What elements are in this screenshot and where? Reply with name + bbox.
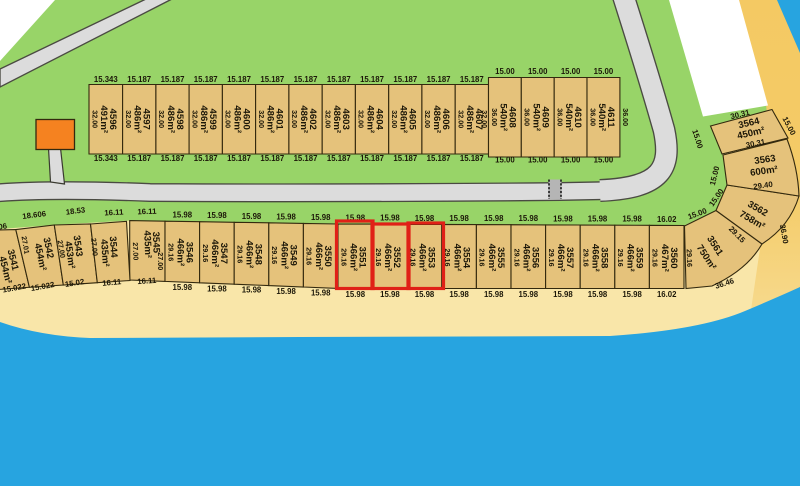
svg-text:15.98: 15.98 — [484, 214, 504, 223]
svg-text:4606: 4606 — [440, 109, 451, 130]
svg-text:16.02: 16.02 — [657, 215, 677, 224]
svg-text:15.98: 15.98 — [622, 290, 642, 299]
svg-text:3556: 3556 — [530, 247, 541, 268]
svg-text:15.98: 15.98 — [276, 212, 296, 221]
svg-text:15.98: 15.98 — [242, 212, 262, 221]
svg-text:4609: 4609 — [539, 107, 550, 128]
svg-text:36.00: 36.00 — [490, 108, 499, 126]
svg-text:4610: 4610 — [572, 107, 583, 128]
svg-text:15.98: 15.98 — [173, 283, 193, 292]
svg-text:15.187: 15.187 — [360, 75, 384, 84]
svg-text:3553: 3553 — [426, 247, 437, 268]
svg-text:3554: 3554 — [460, 247, 471, 269]
svg-text:29.16: 29.16 — [651, 249, 660, 267]
svg-text:32.00: 32.00 — [357, 110, 366, 128]
svg-text:15.98: 15.98 — [415, 290, 435, 299]
svg-text:15.187: 15.187 — [460, 75, 484, 84]
svg-text:3557: 3557 — [564, 247, 575, 268]
svg-text:4602: 4602 — [307, 109, 318, 130]
svg-text:15.187: 15.187 — [260, 154, 284, 163]
svg-text:36.00: 36.00 — [523, 108, 532, 126]
svg-text:32.00: 32.00 — [290, 110, 299, 128]
svg-text:15.98: 15.98 — [553, 290, 573, 299]
svg-text:32.00: 32.00 — [390, 110, 399, 128]
svg-text:15.98: 15.98 — [588, 290, 608, 299]
svg-text:3550: 3550 — [322, 246, 333, 267]
svg-text:32.00: 32.00 — [324, 110, 333, 128]
svg-text:32.00: 32.00 — [90, 110, 99, 128]
svg-text:15.00: 15.00 — [561, 67, 581, 76]
svg-text:15.98: 15.98 — [449, 290, 469, 299]
svg-text:15.187: 15.187 — [227, 75, 251, 84]
svg-text:29.16: 29.16 — [547, 249, 556, 267]
svg-text:15.00: 15.00 — [528, 156, 548, 165]
svg-text:16.11: 16.11 — [137, 207, 157, 217]
svg-text:15.98: 15.98 — [173, 211, 193, 220]
svg-text:15.98: 15.98 — [242, 286, 262, 295]
svg-text:15.98: 15.98 — [207, 284, 227, 293]
svg-text:27.00: 27.00 — [156, 252, 165, 270]
svg-text:3544: 3544 — [107, 236, 120, 259]
svg-text:15.00: 15.00 — [594, 156, 614, 165]
svg-text:15.98: 15.98 — [519, 290, 539, 299]
svg-text:3548: 3548 — [253, 244, 264, 266]
svg-text:15.98: 15.98 — [311, 213, 331, 222]
svg-text:3559: 3559 — [633, 247, 644, 268]
svg-text:16.11: 16.11 — [137, 276, 157, 286]
svg-text:3547: 3547 — [218, 243, 229, 264]
svg-text:4604: 4604 — [373, 109, 384, 131]
svg-text:15.187: 15.187 — [460, 154, 484, 163]
svg-text:4605: 4605 — [407, 109, 418, 131]
svg-text:3560: 3560 — [668, 247, 679, 268]
svg-text:15.187: 15.187 — [161, 154, 185, 163]
svg-text:32.00: 32.00 — [157, 110, 166, 128]
svg-text:4598: 4598 — [174, 109, 185, 131]
svg-text:32.00: 32.00 — [257, 110, 266, 128]
svg-text:15.98: 15.98 — [519, 214, 539, 223]
svg-text:15.187: 15.187 — [393, 154, 417, 163]
svg-text:29.16: 29.16 — [685, 249, 695, 267]
svg-text:29.16: 29.16 — [512, 249, 521, 267]
svg-text:15.187: 15.187 — [427, 75, 451, 84]
svg-text:15.187: 15.187 — [427, 154, 451, 163]
svg-text:15.187: 15.187 — [260, 75, 284, 84]
svg-text:29.16: 29.16 — [166, 243, 175, 261]
svg-text:3558: 3558 — [599, 247, 610, 269]
svg-text:29.16: 29.16 — [616, 249, 625, 267]
svg-text:15.187: 15.187 — [393, 75, 417, 84]
svg-text:15.98: 15.98 — [207, 211, 227, 220]
svg-text:32.00: 32.00 — [480, 110, 489, 128]
svg-text:15.98: 15.98 — [484, 290, 504, 299]
svg-text:29.16: 29.16 — [339, 248, 348, 266]
svg-text:27.00: 27.00 — [131, 242, 141, 260]
svg-text:4600: 4600 — [240, 109, 251, 130]
svg-text:16.11: 16.11 — [104, 207, 124, 217]
svg-text:3555: 3555 — [495, 247, 506, 269]
svg-text:27.00: 27.00 — [89, 238, 100, 257]
svg-text:4611: 4611 — [605, 107, 616, 128]
svg-text:15.00: 15.00 — [528, 67, 548, 76]
svg-text:15.98: 15.98 — [276, 287, 296, 296]
svg-text:32.00: 32.00 — [124, 110, 133, 128]
svg-text:4608: 4608 — [507, 107, 518, 129]
svg-text:15.98: 15.98 — [311, 289, 331, 298]
svg-text:15.187: 15.187 — [194, 75, 218, 84]
svg-text:15.187: 15.187 — [194, 154, 218, 163]
svg-text:16.11: 16.11 — [102, 277, 122, 288]
svg-text:15.00: 15.00 — [594, 67, 614, 76]
svg-text:15.187: 15.187 — [294, 154, 318, 163]
svg-text:15.98: 15.98 — [380, 214, 400, 223]
svg-text:15.187: 15.187 — [127, 75, 151, 84]
svg-text:15.187: 15.187 — [360, 154, 384, 163]
svg-text:15.187: 15.187 — [294, 75, 318, 84]
svg-text:32.00: 32.00 — [224, 110, 233, 128]
svg-text:15.98: 15.98 — [588, 215, 608, 224]
svg-text:15.187: 15.187 — [327, 75, 351, 84]
svg-text:15.343: 15.343 — [94, 154, 119, 163]
svg-text:15.187: 15.187 — [327, 154, 351, 163]
svg-text:16.02: 16.02 — [657, 290, 677, 299]
svg-text:32.00: 32.00 — [457, 110, 466, 128]
svg-text:15.187: 15.187 — [127, 154, 151, 163]
svg-text:3551: 3551 — [357, 247, 368, 269]
svg-text:29.16: 29.16 — [236, 245, 245, 263]
svg-text:15.98: 15.98 — [380, 290, 400, 299]
svg-text:15.98: 15.98 — [553, 214, 573, 223]
svg-text:29.16: 29.16 — [478, 249, 487, 267]
svg-text:3552: 3552 — [391, 247, 402, 268]
svg-text:4601: 4601 — [274, 109, 285, 131]
svg-text:15.00: 15.00 — [495, 156, 515, 165]
svg-text:36.00: 36.00 — [588, 108, 597, 126]
svg-text:32.00: 32.00 — [423, 110, 432, 128]
svg-text:15.98: 15.98 — [346, 290, 366, 299]
svg-text:36.00: 36.00 — [621, 108, 630, 126]
svg-text:15.00: 15.00 — [561, 156, 581, 165]
svg-text:3546: 3546 — [184, 242, 195, 263]
svg-text:15.187: 15.187 — [227, 154, 251, 163]
svg-text:32.00: 32.00 — [190, 110, 199, 128]
svg-text:4597: 4597 — [141, 109, 152, 130]
svg-text:15.98: 15.98 — [449, 214, 469, 223]
svg-text:15.343: 15.343 — [94, 75, 119, 84]
svg-text:29.16: 29.16 — [201, 244, 210, 262]
svg-text:3549: 3549 — [287, 245, 298, 266]
svg-text:29.16: 29.16 — [374, 248, 383, 266]
svg-text:4599: 4599 — [207, 109, 218, 130]
svg-text:15.00: 15.00 — [495, 67, 515, 76]
svg-text:29.16: 29.16 — [305, 247, 314, 265]
svg-text:3545: 3545 — [150, 231, 162, 253]
svg-text:4603: 4603 — [340, 109, 351, 130]
svg-text:4596: 4596 — [107, 109, 118, 130]
svg-text:36.00: 36.00 — [556, 108, 565, 126]
svg-text:15.98: 15.98 — [622, 215, 642, 224]
svg-text:29.16: 29.16 — [270, 246, 279, 264]
svg-text:29.16: 29.16 — [582, 249, 591, 267]
svg-text:15.187: 15.187 — [161, 75, 185, 84]
